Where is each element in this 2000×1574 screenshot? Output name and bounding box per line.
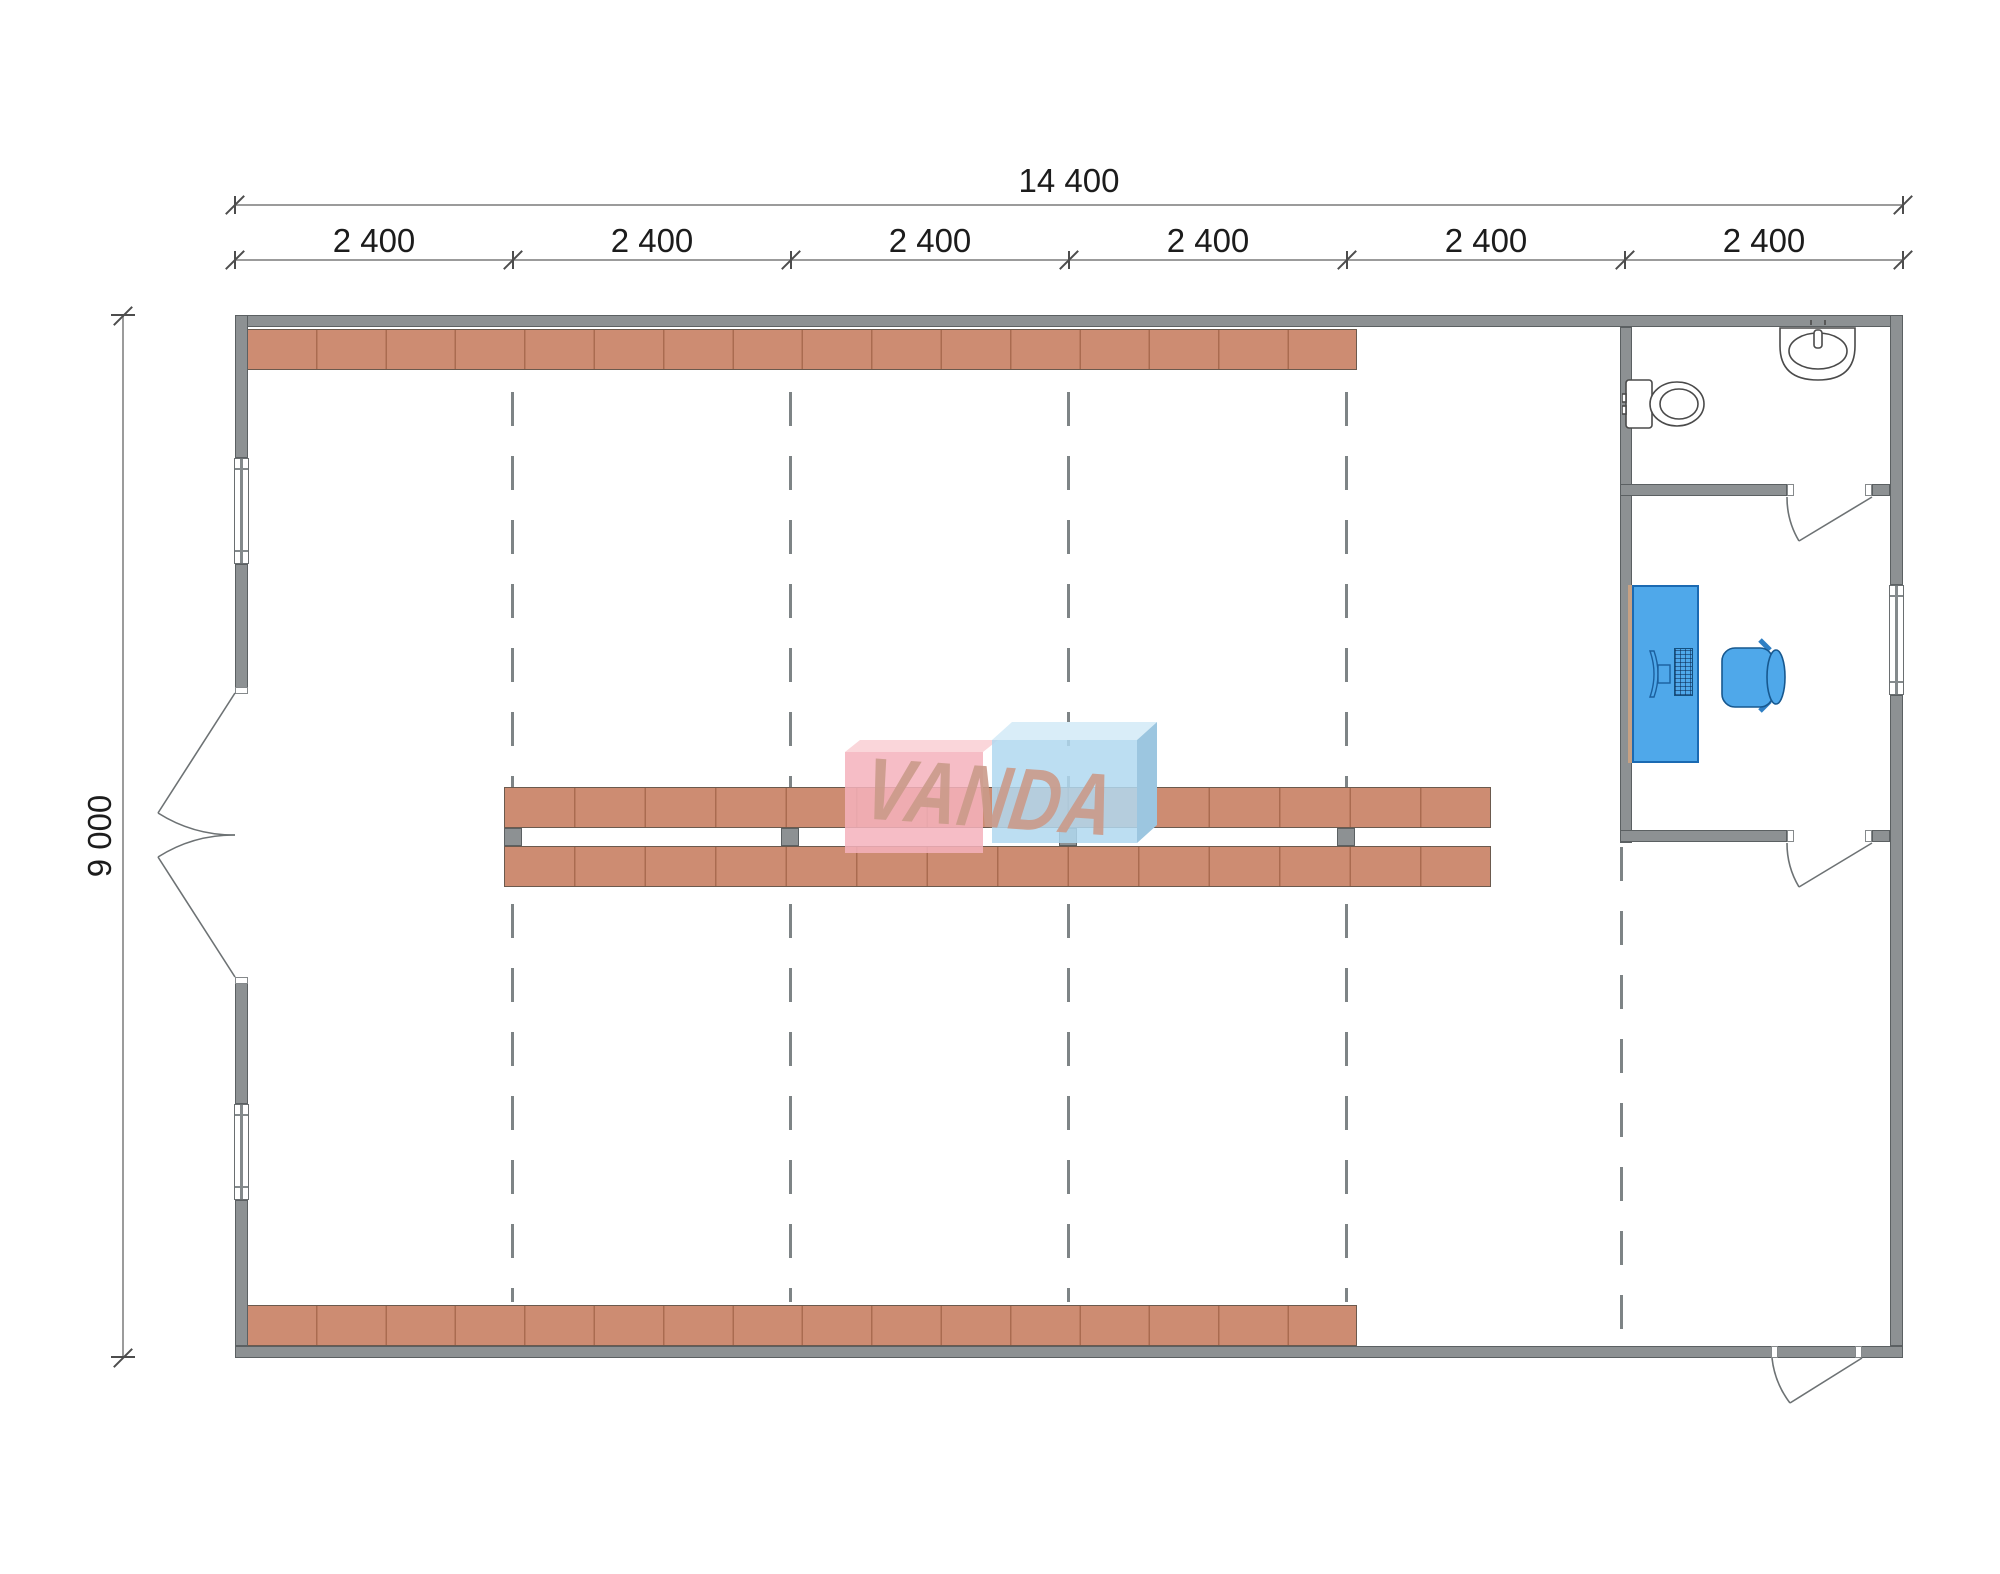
double-entry-door-swing: [140, 685, 255, 985]
dimension-label-bay-6: 2 400: [1704, 222, 1824, 260]
shelf-connector-post: [504, 828, 522, 846]
dim-extension: [790, 251, 792, 269]
office-door-swing: [1780, 836, 1880, 898]
dim-extension: [111, 1356, 135, 1358]
dim-extension: [1068, 251, 1070, 269]
grid-line-5: [1620, 847, 1623, 1340]
office-chair-icon: [1710, 628, 1800, 723]
wall-top: [235, 315, 1903, 327]
logo-blue-box-side: [1137, 722, 1157, 843]
wall-bathroom-bottom: [1620, 484, 1787, 496]
dimension-line-total-width: [235, 204, 1903, 206]
wall-right-segment: [1890, 315, 1903, 585]
dim-extension: [1346, 251, 1348, 269]
watermark-text: VANDA: [871, 735, 1107, 859]
window-left-upper: [234, 458, 249, 564]
dimension-label-bay-2: 2 400: [592, 222, 712, 260]
shelf-row-bottom-wall: [247, 1305, 1357, 1346]
shelf-connector-post: [1337, 828, 1355, 846]
bathroom-door-swing: [1780, 490, 1880, 552]
dim-extension: [1902, 196, 1904, 214]
wall-left-segment: [235, 564, 248, 693]
window-left-lower: [234, 1104, 249, 1200]
dimension-label-bay-1: 2 400: [314, 222, 434, 260]
dimension-label-total-width: 14 400: [969, 162, 1169, 200]
wall-right-segment: [1890, 695, 1903, 1346]
dim-extension: [512, 251, 514, 269]
dimension-label-height: 9 000: [50, 791, 150, 881]
wall-office-bottom: [1620, 830, 1787, 842]
window-right-office: [1889, 585, 1904, 695]
logo-blue-box-top: [992, 722, 1157, 740]
wall-left-segment: [235, 980, 248, 1104]
shelf-connector-post: [781, 828, 799, 846]
keyboard-icon: [1674, 648, 1693, 696]
dim-extension: [1624, 251, 1626, 269]
rear-exit-door-swing: [1764, 1352, 1874, 1414]
wall-bottom: [235, 1346, 1903, 1358]
dim-extension: [234, 196, 236, 214]
dim-extension: [234, 251, 236, 269]
dim-extension: [111, 314, 135, 316]
dimension-label-bay-4: 2 400: [1148, 222, 1268, 260]
floor-plan-canvas: 14 400 2 400 2 400 2 400 2 400 2 400 2 4…: [0, 0, 2000, 1574]
wall-left-segment: [235, 315, 248, 458]
dim-extension: [1902, 251, 1904, 269]
dimension-label-bay-5: 2 400: [1426, 222, 1546, 260]
wall-left-segment: [235, 1200, 248, 1346]
toilet-icon: [1622, 372, 1708, 436]
sink-icon: [1778, 318, 1860, 386]
shelf-row-top-wall: [247, 329, 1357, 370]
dimension-label-bay-3: 2 400: [870, 222, 990, 260]
